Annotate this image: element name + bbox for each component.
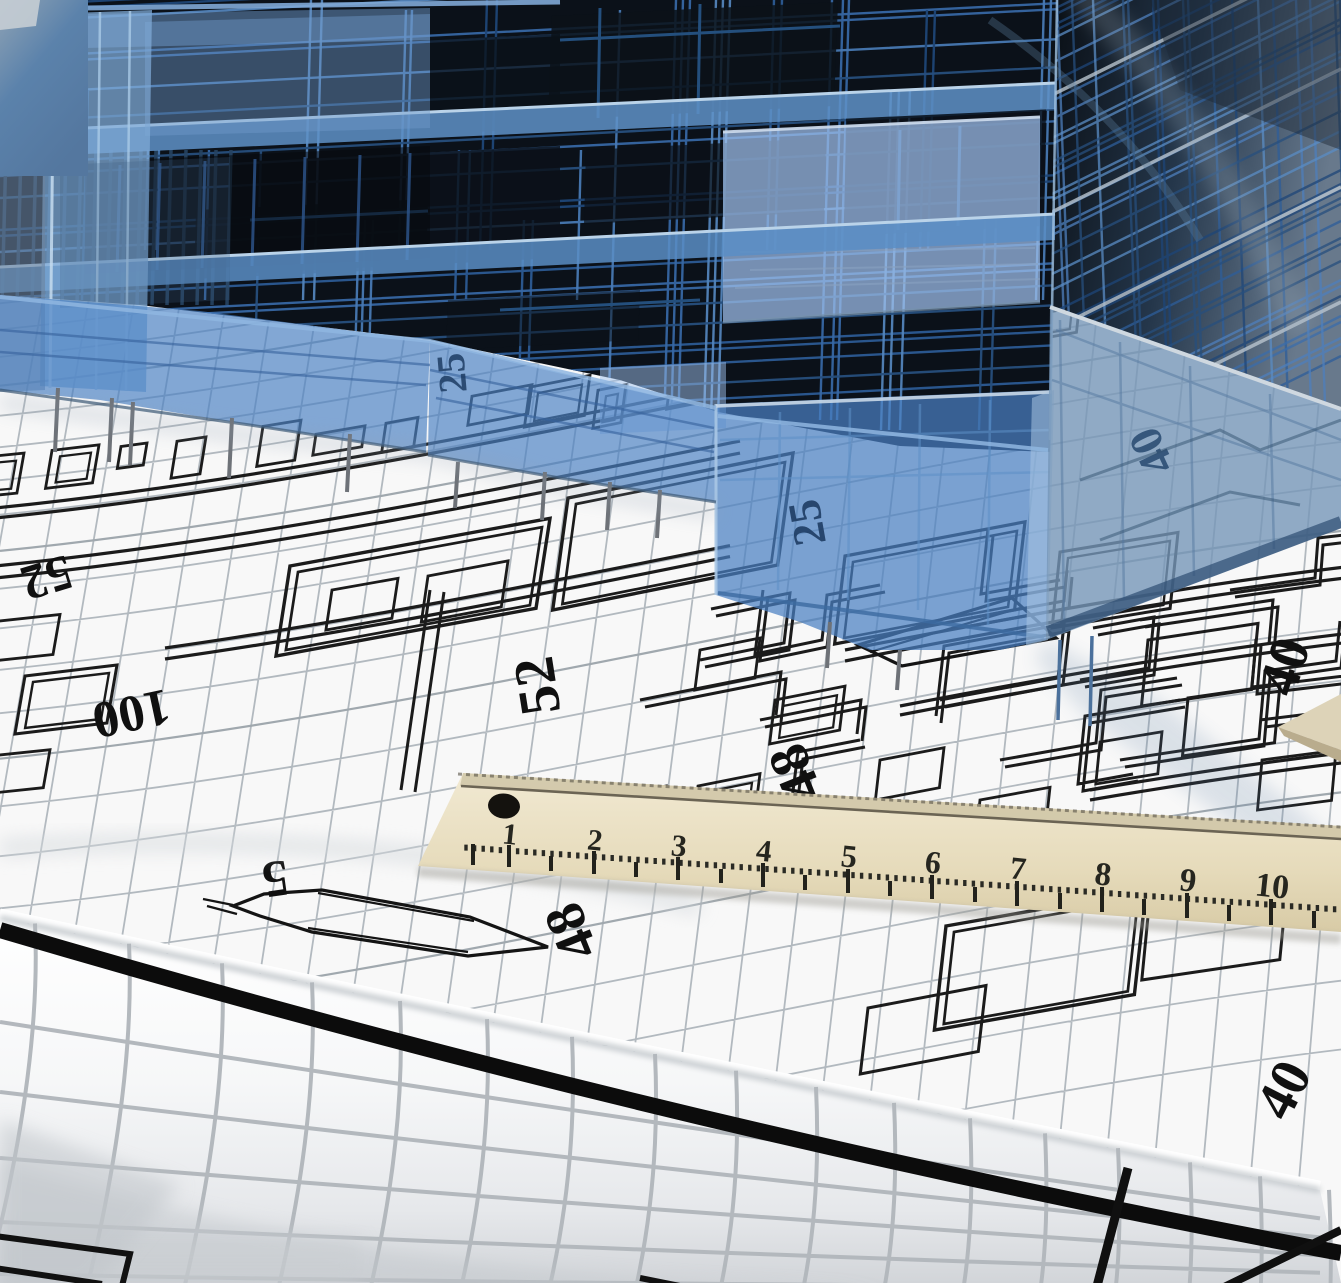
svg-text:10: 10	[1253, 866, 1291, 906]
svg-text:52: 52	[500, 652, 573, 719]
svg-text:25: 25	[427, 351, 475, 395]
svg-text:25: 25	[778, 496, 836, 550]
